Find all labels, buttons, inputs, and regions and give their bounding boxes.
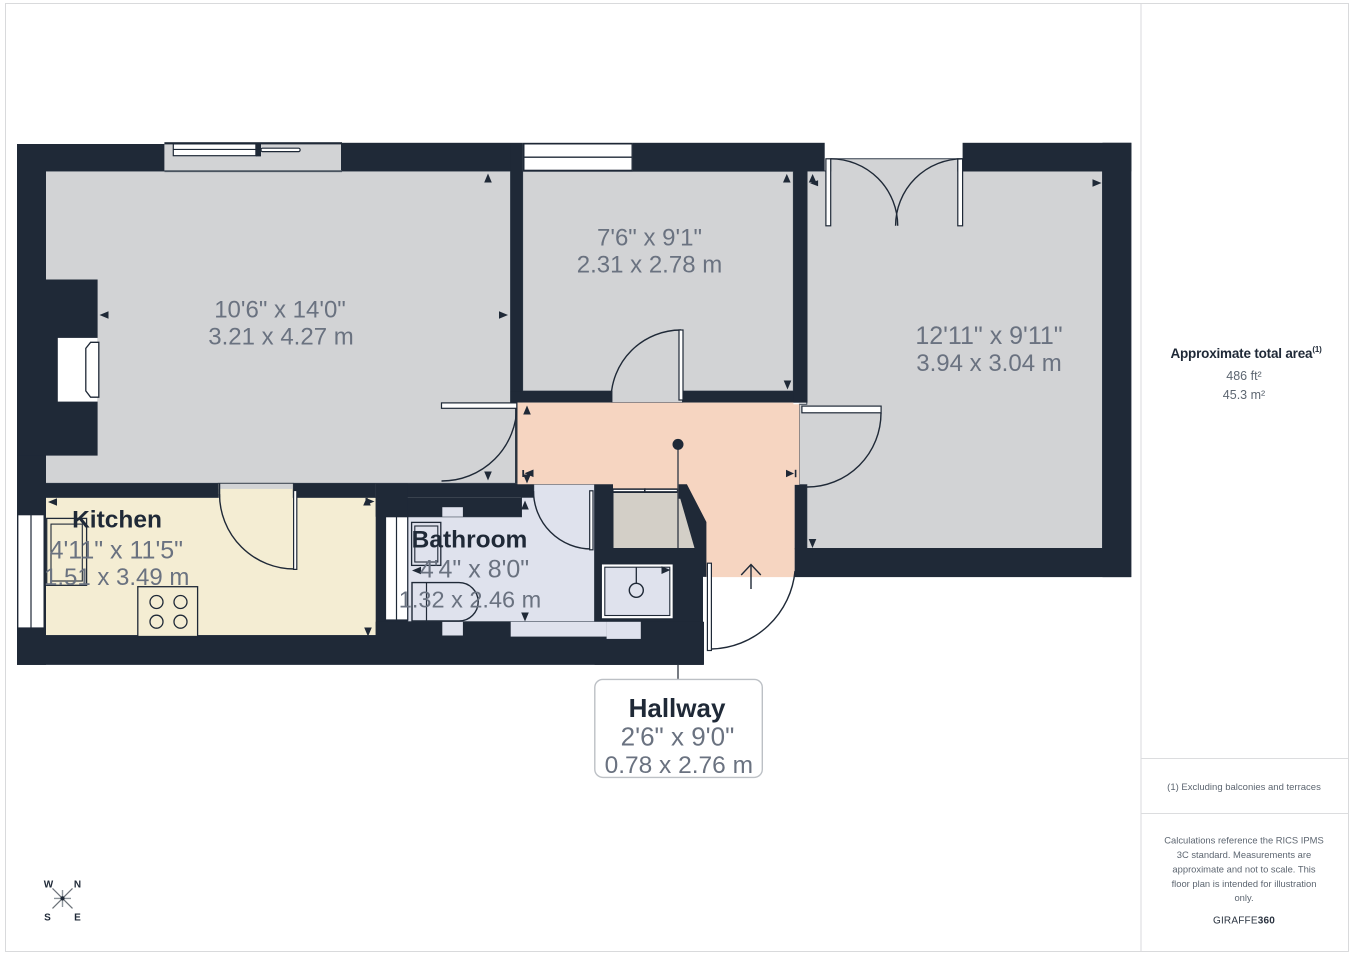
svg-text:10'6" x 14'0": 10'6" x 14'0" bbox=[214, 297, 346, 324]
svg-text:1.51 x 3.49 m: 1.51 x 3.49 m bbox=[44, 564, 189, 591]
svg-text:Calculations reference the RIC: Calculations reference the RICS IPMS bbox=[1164, 835, 1323, 846]
svg-text:S: S bbox=[44, 913, 51, 924]
svg-text:N: N bbox=[74, 880, 81, 891]
svg-text:Approximate total area(1): Approximate total area(1) bbox=[1170, 345, 1322, 361]
svg-text:1.32 x 2.46 m: 1.32 x 2.46 m bbox=[399, 587, 541, 613]
svg-text:only.: only. bbox=[1234, 892, 1253, 903]
svg-text:3.94 x 3.04 m: 3.94 x 3.04 m bbox=[916, 350, 1061, 377]
svg-text:3.21 x 4.27 m: 3.21 x 4.27 m bbox=[208, 324, 353, 351]
svg-text:3C standard. Measurements are: 3C standard. Measurements are bbox=[1177, 849, 1311, 860]
svg-text:approximate and not to scale.: approximate and not to scale. This bbox=[1172, 863, 1315, 874]
svg-text:(1) Excluding balconies and te: (1) Excluding balconies and terraces bbox=[1167, 782, 1321, 793]
svg-text:E: E bbox=[74, 913, 81, 924]
svg-text:4'11" x 11'5": 4'11" x 11'5" bbox=[50, 537, 183, 565]
svg-text:486 ft²: 486 ft² bbox=[1226, 369, 1261, 383]
svg-text:45.3 m²: 45.3 m² bbox=[1223, 388, 1265, 402]
svg-text:floor plan is intended for ill: floor plan is intended for illustration bbox=[1172, 878, 1317, 889]
svg-text:12'11" x 9'11": 12'11" x 9'11" bbox=[915, 322, 1062, 350]
svg-text:W: W bbox=[44, 880, 54, 891]
svg-text:0.78 x 2.76 m: 0.78 x 2.76 m bbox=[605, 752, 753, 779]
svg-text:2'6" x 9'0": 2'6" x 9'0" bbox=[621, 722, 735, 752]
svg-text:Bathroom: Bathroom bbox=[412, 527, 528, 554]
svg-text:7'6" x 9'1": 7'6" x 9'1" bbox=[597, 225, 702, 252]
svg-text:Kitchen: Kitchen bbox=[72, 507, 162, 534]
svg-text:Hallway: Hallway bbox=[629, 693, 726, 723]
svg-text:2.31 x 2.78 m: 2.31 x 2.78 m bbox=[577, 252, 722, 279]
svg-text:4'4" x 8'0": 4'4" x 8'0" bbox=[420, 556, 529, 584]
svg-text:GIRAFFE360: GIRAFFE360 bbox=[1213, 916, 1275, 927]
